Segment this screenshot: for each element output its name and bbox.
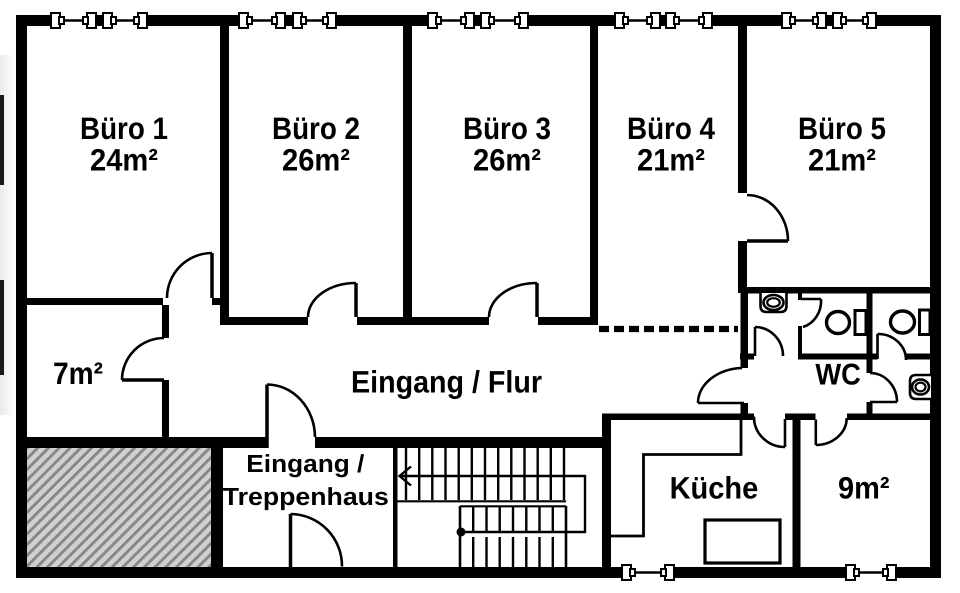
svg-text:Büro 3: Büro 3	[463, 111, 551, 146]
svg-text:Büro 5: Büro 5	[798, 111, 886, 146]
svg-text:26m²: 26m²	[282, 143, 350, 178]
svg-text:Eingang /: Eingang /	[246, 451, 364, 478]
svg-text:24m²: 24m²	[90, 143, 158, 178]
svg-text:Treppenhaus: Treppenhaus	[223, 484, 389, 511]
svg-text:Eingang / Flur: Eingang / Flur	[351, 364, 542, 399]
svg-text:Büro 1: Büro 1	[80, 111, 168, 146]
svg-text:Büro 4: Büro 4	[627, 111, 716, 146]
svg-text:21m²: 21m²	[808, 143, 876, 178]
svg-text:Büro 2: Büro 2	[272, 111, 360, 146]
svg-text:Küche: Küche	[670, 471, 759, 506]
svg-text:9m²: 9m²	[838, 471, 890, 506]
svg-text:WC: WC	[815, 359, 861, 392]
svg-text:7m²: 7m²	[53, 356, 103, 391]
svg-text:21m²: 21m²	[637, 143, 705, 178]
svg-text:26m²: 26m²	[473, 143, 541, 178]
